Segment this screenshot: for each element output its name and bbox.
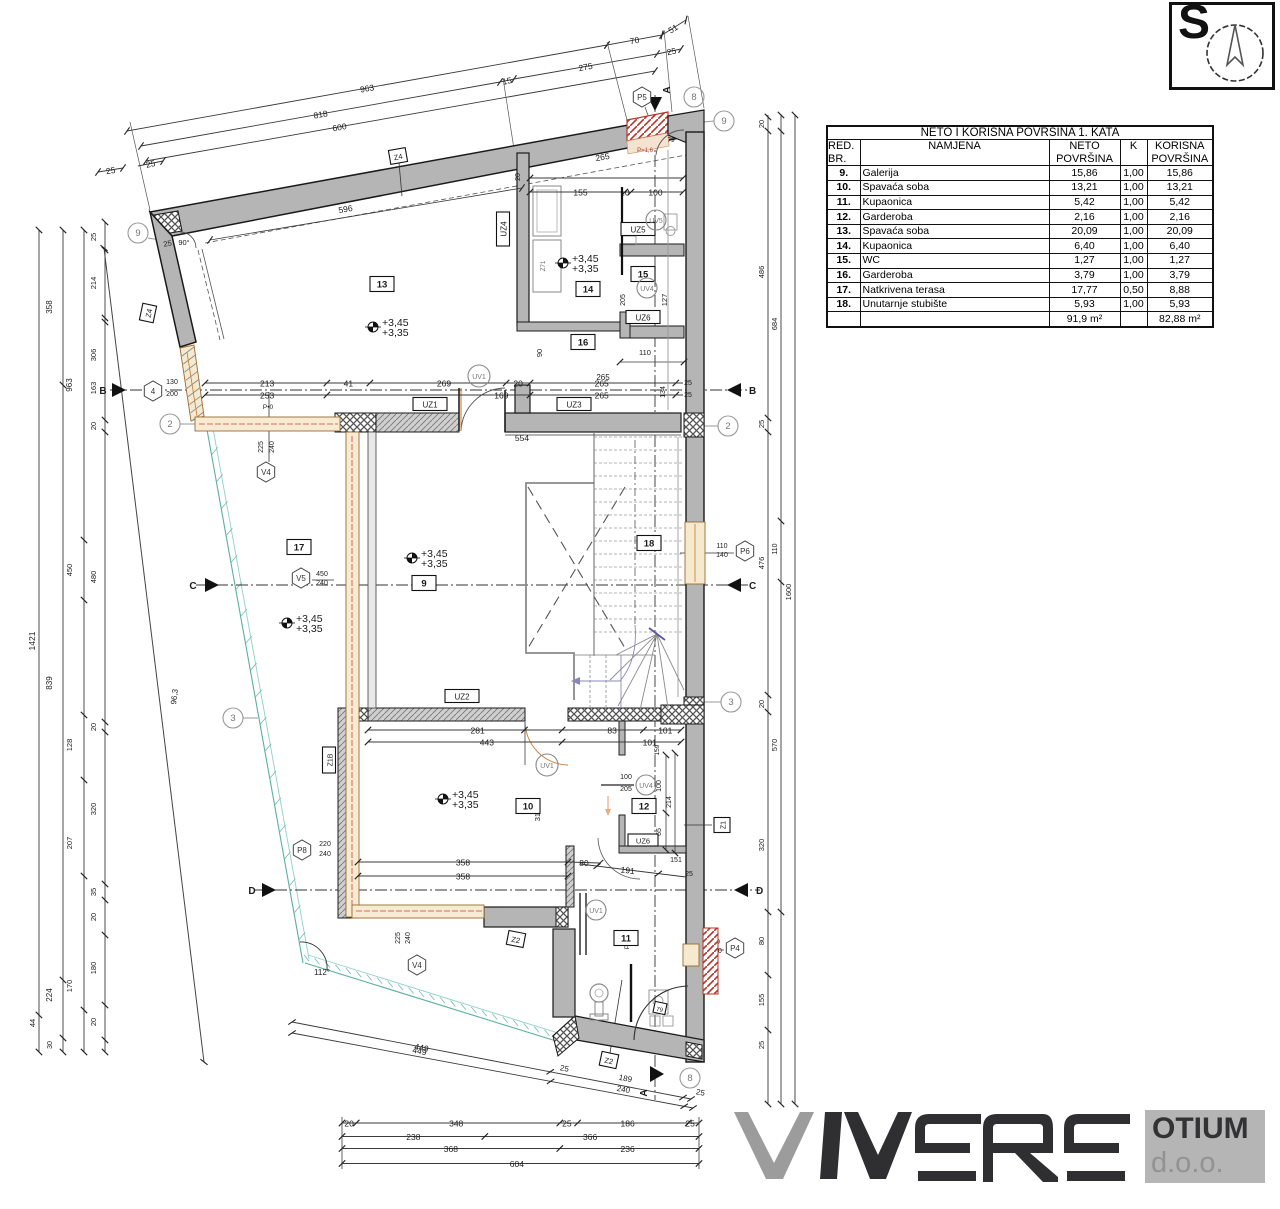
svg-text:B: B	[99, 386, 106, 397]
svg-text:25: 25	[559, 1063, 570, 1074]
svg-text:205: 205	[620, 786, 632, 793]
svg-text:+3,35: +3,35	[572, 263, 599, 275]
svg-text:10: 10	[523, 802, 534, 813]
svg-text:269: 269	[437, 379, 451, 389]
svg-text:P•0: P•0	[263, 404, 274, 411]
svg-text:155: 155	[573, 188, 587, 198]
svg-text:Z4: Z4	[144, 308, 155, 318]
svg-text:224: 224	[45, 988, 54, 1002]
svg-text:110: 110	[772, 543, 779, 554]
svg-text:240: 240	[319, 851, 331, 858]
svg-text:170: 170	[65, 980, 74, 993]
svg-text:2: 2	[167, 419, 172, 430]
svg-text:V5: V5	[296, 574, 306, 583]
svg-text:2: 2	[725, 421, 730, 432]
svg-text:UV1: UV1	[589, 908, 603, 915]
svg-text:684: 684	[770, 318, 779, 331]
svg-text:130: 130	[166, 379, 178, 386]
svg-text:596: 596	[338, 203, 354, 215]
svg-text:96,3: 96,3	[169, 688, 180, 705]
svg-text:348: 348	[449, 1119, 463, 1129]
svg-text:20: 20	[757, 120, 766, 128]
svg-text:P8: P8	[297, 846, 307, 855]
svg-text:186: 186	[621, 1119, 635, 1129]
svg-text:8: 8	[687, 1073, 692, 1084]
svg-text:100: 100	[648, 188, 662, 198]
svg-text:368: 368	[444, 1144, 458, 1154]
svg-text:11: 11	[621, 934, 632, 945]
svg-text:134: 134	[660, 386, 667, 398]
svg-text:25: 25	[666, 46, 678, 58]
svg-text:1421: 1421	[27, 631, 37, 650]
svg-text:236: 236	[621, 1144, 635, 1154]
svg-text:20: 20	[513, 379, 523, 389]
svg-text:9: 9	[721, 116, 726, 127]
svg-text:600: 600	[332, 121, 348, 133]
svg-text:83: 83	[607, 726, 617, 736]
svg-text:80: 80	[757, 937, 766, 945]
svg-text:25: 25	[684, 380, 692, 387]
svg-text:213: 213	[260, 379, 274, 389]
svg-text:281: 281	[471, 726, 485, 736]
svg-text:214: 214	[666, 796, 673, 808]
svg-text:963: 963	[359, 82, 375, 94]
svg-text:189: 189	[618, 1073, 633, 1084]
svg-text:UV4: UV4	[640, 286, 654, 293]
svg-text:UV1: UV1	[472, 374, 486, 381]
svg-text:110: 110	[716, 543, 727, 550]
svg-text:191: 191	[620, 864, 636, 876]
svg-text:128: 128	[65, 739, 74, 752]
svg-text:P4: P4	[730, 944, 740, 953]
svg-text:+3,35: +3,35	[421, 558, 448, 570]
svg-text:443: 443	[480, 738, 494, 748]
svg-text:UZ1: UZ1	[422, 401, 438, 410]
svg-text:+3,35: +3,35	[452, 799, 479, 811]
svg-text:25: 25	[562, 1119, 572, 1129]
svg-text:C: C	[749, 581, 756, 592]
svg-text:Z2: Z2	[604, 1056, 614, 1067]
svg-text:UZ6: UZ6	[635, 314, 651, 323]
svg-text:100: 100	[620, 774, 632, 781]
svg-text:30: 30	[47, 1041, 54, 1049]
svg-text:205: 205	[620, 294, 627, 306]
svg-text:9: 9	[135, 228, 140, 239]
svg-text:16: 16	[578, 338, 589, 349]
svg-text:70: 70	[629, 35, 640, 47]
svg-text:3: 3	[728, 697, 733, 708]
svg-text:17: 17	[294, 543, 305, 554]
svg-text:8: 8	[691, 92, 696, 103]
svg-text:20: 20	[89, 422, 98, 430]
svg-text:13: 13	[377, 280, 388, 291]
svg-text:25: 25	[163, 238, 173, 248]
svg-text:25: 25	[105, 165, 116, 176]
svg-text:554: 554	[515, 433, 529, 443]
svg-text:839: 839	[45, 676, 54, 690]
svg-text:UV4: UV4	[639, 783, 653, 790]
svg-text:51: 51	[666, 22, 680, 36]
svg-text:UZ2: UZ2	[454, 693, 470, 702]
svg-text:90°: 90°	[178, 238, 189, 247]
svg-text:358: 358	[45, 300, 54, 314]
svg-text:220: 220	[319, 841, 331, 848]
svg-text:B: B	[749, 386, 756, 397]
svg-text:Z4: Z4	[393, 152, 403, 162]
svg-text:225: 225	[395, 932, 402, 944]
svg-text:44: 44	[28, 1019, 37, 1027]
svg-text:253: 253	[260, 391, 274, 401]
svg-text:20: 20	[344, 1119, 354, 1129]
svg-text:240: 240	[316, 580, 328, 587]
svg-text:20: 20	[515, 173, 522, 181]
svg-text:41: 41	[344, 379, 354, 389]
svg-text:V4: V4	[412, 961, 422, 970]
svg-text:25: 25	[757, 1041, 766, 1049]
svg-text:155: 155	[757, 994, 766, 1007]
svg-text:A: A	[639, 1089, 650, 1096]
svg-text:Z71: Z71	[541, 260, 547, 271]
svg-text:476: 476	[757, 557, 766, 570]
svg-text:275: 275	[578, 61, 594, 73]
svg-text:25: 25	[695, 1087, 706, 1098]
svg-text:240: 240	[405, 932, 412, 944]
svg-text:169: 169	[494, 391, 508, 401]
svg-text:4: 4	[151, 387, 156, 396]
svg-text:25: 25	[685, 871, 693, 878]
svg-text:d.o.o.: d.o.o.	[1151, 1147, 1224, 1179]
svg-text:163: 163	[89, 382, 98, 395]
svg-text:151: 151	[670, 857, 682, 864]
svg-text:P6: P6	[740, 547, 750, 556]
svg-text:214: 214	[89, 277, 98, 290]
svg-text:14: 14	[583, 285, 594, 296]
svg-text:UZ6: UZ6	[636, 837, 650, 846]
svg-text:207: 207	[65, 837, 74, 850]
svg-text:358: 358	[456, 872, 470, 882]
svg-text:18: 18	[644, 539, 655, 550]
svg-text:A: A	[662, 86, 673, 93]
svg-text:35: 35	[89, 888, 98, 896]
svg-text:112°: 112°	[314, 968, 330, 977]
svg-text:3: 3	[230, 713, 235, 724]
svg-text:238: 238	[406, 1132, 420, 1142]
svg-text:Z1B: Z1B	[328, 753, 335, 766]
svg-text:306: 306	[89, 349, 98, 362]
svg-text:20: 20	[89, 913, 98, 921]
svg-text:90: 90	[535, 349, 544, 357]
svg-text:265: 265	[596, 373, 610, 382]
svg-text:P=1,6: P=1,6	[637, 148, 654, 154]
svg-text:320: 320	[89, 803, 98, 816]
svg-text:C: C	[189, 581, 196, 592]
svg-text:9: 9	[421, 579, 426, 590]
svg-text:100: 100	[656, 780, 663, 792]
svg-text:963: 963	[65, 378, 74, 392]
svg-text:265: 265	[595, 151, 611, 163]
svg-text:D: D	[248, 886, 255, 897]
svg-text:180: 180	[89, 962, 98, 975]
svg-text:570: 570	[770, 739, 779, 752]
svg-text:110: 110	[639, 348, 651, 357]
svg-text:D: D	[756, 886, 763, 897]
svg-text:265: 265	[595, 391, 609, 401]
svg-text:UZ5: UZ5	[630, 226, 646, 235]
svg-text:604: 604	[510, 1159, 524, 1169]
svg-text:Z1: Z1	[721, 821, 728, 829]
svg-text:+3,35: +3,35	[382, 327, 409, 339]
svg-text:450: 450	[65, 564, 74, 577]
svg-text:25: 25	[89, 233, 98, 241]
svg-text:25: 25	[757, 420, 766, 428]
svg-text:20: 20	[89, 723, 98, 731]
svg-text:358: 358	[456, 858, 470, 868]
svg-text:20: 20	[89, 1018, 98, 1026]
svg-text:320: 320	[757, 839, 766, 852]
svg-text:UZ3: UZ3	[566, 401, 582, 410]
svg-text:366: 366	[583, 1132, 597, 1142]
svg-text:UV5: UV5	[649, 218, 663, 225]
svg-text:Z2: Z2	[511, 935, 521, 946]
svg-text:225: 225	[258, 441, 265, 453]
svg-text:240: 240	[269, 441, 276, 453]
svg-text:101: 101	[658, 726, 672, 736]
svg-text:25: 25	[685, 1119, 695, 1129]
svg-text:20: 20	[757, 700, 766, 708]
svg-text:200: 200	[166, 391, 178, 398]
svg-text:818: 818	[313, 108, 329, 120]
svg-text:480: 480	[89, 571, 98, 584]
svg-text:25: 25	[684, 392, 692, 399]
svg-text:80: 80	[579, 858, 589, 868]
svg-text:OTIUM: OTIUM	[1152, 1112, 1249, 1145]
svg-text:1600: 1600	[784, 584, 793, 601]
svg-text:+3,35: +3,35	[296, 623, 323, 635]
svg-text:UZ4: UZ4	[500, 221, 509, 237]
svg-text:101: 101	[643, 738, 657, 748]
svg-text:V4: V4	[261, 468, 271, 477]
svg-text:12: 12	[639, 802, 650, 813]
svg-text:P5: P5	[637, 93, 647, 102]
svg-text:450: 450	[316, 571, 328, 578]
svg-text:UV1: UV1	[540, 763, 554, 770]
svg-text:486: 486	[757, 266, 766, 279]
